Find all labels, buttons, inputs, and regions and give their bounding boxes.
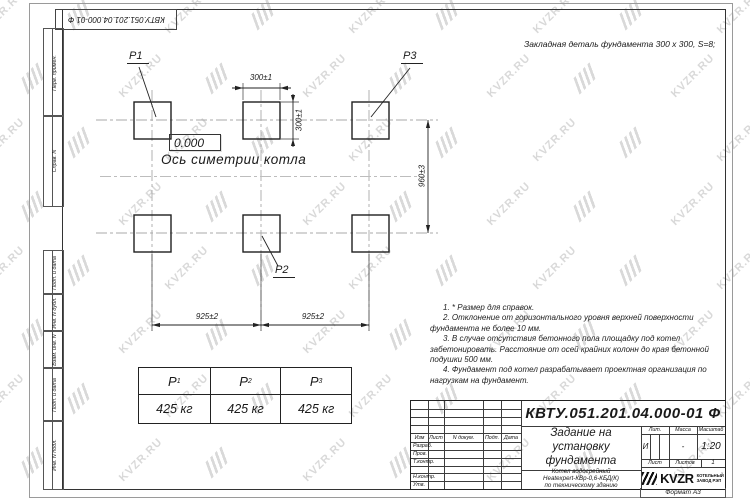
tb-row-utv: Утв. <box>411 481 446 489</box>
note-1: 1. * Размер для справок. <box>430 303 728 313</box>
tb-sheets-label: Листов <box>669 459 701 467</box>
dim-span-right: 925±2 <box>292 312 334 321</box>
leader-p3 <box>371 68 410 117</box>
dim-pad-height: 300±1 <box>295 109 304 131</box>
drawing-sheet: KVZR.RUKVZR.RUKVZR.RUKVZR.RUKVZR.RUKVZR.… <box>0 0 750 500</box>
elevation-mark: 0.000 <box>169 134 221 151</box>
foundation-pad <box>352 215 389 252</box>
tb-col-ndokum: N докум. <box>444 433 483 442</box>
load-table-header-p2: P2 <box>210 368 281 394</box>
tb-mass-header: Масса <box>669 426 697 434</box>
dim-row-spacing: 960±3 <box>418 165 427 187</box>
tb-lit-header: Лит. <box>641 426 669 434</box>
tb-col-data: Дата <box>501 433 521 442</box>
load-table-value-p2: 425 кг <box>210 394 281 423</box>
pad-label-p3: P3 <box>401 50 423 64</box>
tb-row-tkontr: Т.контр. <box>411 458 446 466</box>
foundation-pad <box>243 102 280 139</box>
foundation-pads <box>134 102 389 252</box>
notes-block: 1. * Размер для справок. 2. Отклонение о… <box>430 303 728 386</box>
tb-lit-value: И <box>641 434 650 459</box>
foundation-pad <box>243 215 280 252</box>
company-logo: KVZR КОТЕЛЬНЫЙ ЗАВОД РЭП <box>641 467 725 489</box>
leader-p1 <box>139 67 156 117</box>
embedded-detail-note: Закладная деталь фундамента 300 x 300, S… <box>524 39 715 49</box>
tb-col-podp: Подп. <box>483 433 501 442</box>
load-table-header-p3: P3 <box>280 368 351 394</box>
load-table-header-p1: P1 <box>139 368 210 394</box>
tb-row-blank <box>411 466 446 473</box>
kvzr-logo-icon <box>642 472 657 485</box>
dim-span-left: 925±2 <box>186 312 228 321</box>
tb-col-list: Лист <box>428 433 444 442</box>
dimension-lines <box>152 88 428 325</box>
tb-scale-header: Масштаб <box>697 426 725 434</box>
tb-product: Котел водогрейный Heatexpert-КВр-0,6-КБД… <box>521 470 641 489</box>
load-table-value-p1: 425 кг <box>139 394 210 423</box>
tb-sheet-label: Лист <box>641 459 669 467</box>
tb-scale-value: 1:20 <box>697 434 725 459</box>
axis-lines <box>96 90 438 331</box>
tb-title: Задание на установку фундамента <box>521 426 641 470</box>
pad-label-p2: P2 <box>273 264 295 278</box>
kvzr-logo-text: KVZR <box>660 471 693 486</box>
pad-label-p1: P1 <box>127 50 149 64</box>
tb-row-nkontr: Н.контр. <box>411 473 446 481</box>
tb-row-prov: Пров. <box>411 450 446 458</box>
leader-p2 <box>262 236 278 266</box>
format-label: Формат А3 <box>640 488 726 498</box>
tb-doc-number: КВТУ.051.201.04.000-01 Ф <box>521 401 725 426</box>
note-3: 3. В случае отсутствия бетонного пола пл… <box>430 334 728 365</box>
kvzr-logo-caption: КОТЕЛЬНЫЙ ЗАВОД РЭП <box>697 473 724 484</box>
tb-row-razrab: Разраб. <box>411 442 446 450</box>
tb-mass-value: - <box>669 434 697 459</box>
note-2: 2. Отклонение от горизонтального уровня … <box>430 313 728 334</box>
tb-sheets-value: 1 <box>701 459 725 467</box>
foundation-pad <box>352 102 389 139</box>
note-4: 4. Фундамент под котел разрабатывает про… <box>430 365 728 386</box>
load-table-value-p3: 425 кг <box>280 394 351 423</box>
tb-col-izm: Изм <box>411 433 428 442</box>
dim-pad-width: 300±1 <box>241 73 281 82</box>
foundation-pad <box>134 215 171 252</box>
load-table: P1 P2 P3 425 кг 425 кг 425 кг <box>138 367 352 424</box>
title-block: Изм Лист N докум. Подп. Дата Разраб. Про… <box>410 400 726 490</box>
symmetry-axis-label: Ось симетрии котла <box>161 152 306 167</box>
